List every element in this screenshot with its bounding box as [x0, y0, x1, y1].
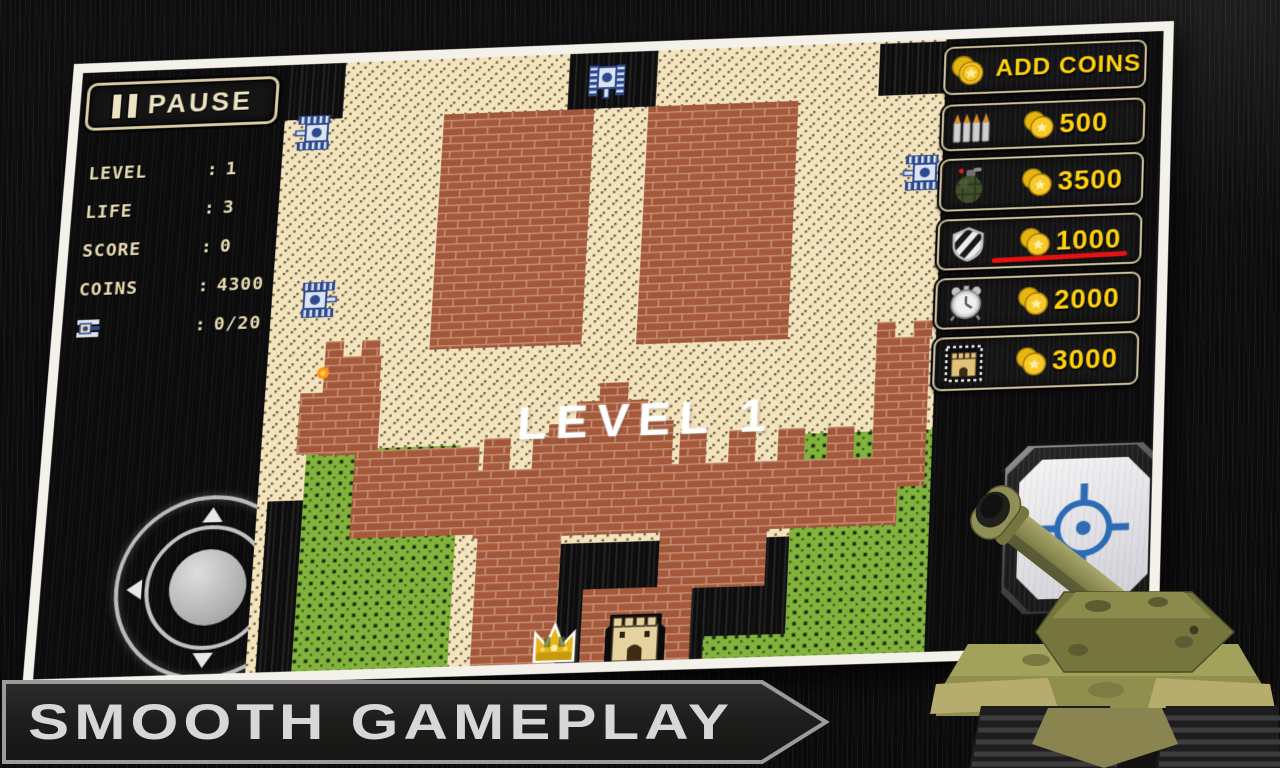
stat-coins: COINS : 4300: [77, 264, 265, 310]
dpad-up-icon[interactable]: [202, 507, 223, 523]
tank-3d-render: [926, 446, 1280, 768]
grenade-icon: [951, 164, 989, 204]
pause-icon: [110, 91, 140, 120]
coins-icon: [948, 54, 988, 86]
shop-item-ammo[interactable]: 500: [941, 97, 1146, 151]
promo-banner: SMOOTH GAMEPLAY: [0, 676, 840, 768]
timer-icon: [946, 284, 986, 323]
shop-price: 1000: [1055, 223, 1140, 257]
shop-item-base[interactable]: 3000: [932, 331, 1140, 392]
shop-item-grenade[interactable]: 3500: [939, 152, 1145, 212]
tank-turret: [1036, 592, 1234, 672]
dpad-left-icon[interactable]: [126, 579, 143, 600]
shop-item-shield[interactable]: 1000: [936, 212, 1142, 270]
pause-button[interactable]: PAUSE: [84, 76, 280, 131]
pause-label: PAUSE: [147, 86, 254, 120]
coins-icon: [1020, 109, 1058, 139]
coins-icon: [1016, 226, 1054, 257]
playfield: LEVEL 1: [245, 39, 947, 672]
stats-panel: LEVEL : 1 LIFE : 3 SCORE : 0: [74, 148, 274, 349]
enemy-tank-icon: [903, 155, 939, 191]
tank-count-icon: [75, 319, 100, 337]
coins-icon: [1015, 285, 1053, 316]
shop-price: 3000: [1052, 342, 1137, 376]
shop-price: 3500: [1057, 163, 1142, 196]
base-icon: [943, 344, 983, 383]
shop-price: 500: [1059, 106, 1143, 139]
add-coins-button[interactable]: ADD COINS: [943, 39, 1147, 95]
promo-screenshot: PAUSE LEVEL : 1 LIFE : 3 SCORE: [0, 0, 1280, 768]
shield-icon: [949, 225, 987, 264]
enemy-tank-icon: [301, 282, 338, 318]
enemy-tank-icon: [295, 115, 331, 151]
coins-icon: [1013, 346, 1051, 377]
banner-label: SMOOTH GAMEPLAY: [28, 694, 734, 750]
stat-enemy-count: : 0/20: [74, 303, 262, 349]
playfield-map: [245, 39, 947, 672]
enemy-tank-icon: [588, 64, 626, 98]
add-coins-label: ADD COINS: [995, 50, 1142, 83]
bullets-icon: [951, 110, 993, 144]
dpad-down-icon[interactable]: [191, 653, 213, 669]
base-castle-sprite: [608, 613, 662, 661]
shop-price: 2000: [1054, 282, 1139, 316]
coins-icon: [1018, 167, 1056, 198]
shop-item-timer[interactable]: 2000: [934, 271, 1141, 330]
